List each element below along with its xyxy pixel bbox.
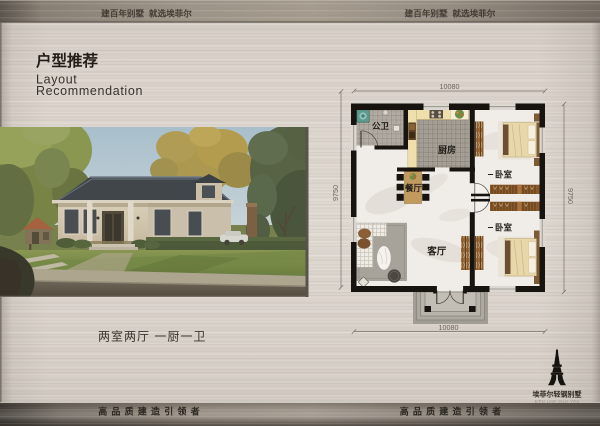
svg-text:10080: 10080 xyxy=(440,82,460,91)
svg-text:两室两厅 一厨一卫: 两室两厅 一厨一卫 xyxy=(98,329,206,344)
svg-text:9750: 9750 xyxy=(566,188,575,204)
svg-text:公卫: 公卫 xyxy=(372,121,390,131)
svg-text:建百年别墅 就选埃菲尔: 建百年别墅 就选埃菲尔 xyxy=(404,7,496,18)
svg-text:厨房: 厨房 xyxy=(438,144,456,155)
svg-text:卧室: 卧室 xyxy=(495,223,513,233)
svg-text:Recommendation: Recommendation xyxy=(36,84,143,98)
svg-text:9750: 9750 xyxy=(331,185,340,201)
svg-text:埃菲尔轻钢别墅: 埃菲尔轻钢别墅 xyxy=(533,390,582,399)
svg-text:户型推荐: 户型推荐 xyxy=(36,51,99,70)
svg-text:高品质建造引领者: 高品质建造引领者 xyxy=(400,406,506,417)
svg-text:卧室: 卧室 xyxy=(495,170,513,180)
svg-text:10080: 10080 xyxy=(439,323,459,332)
svg-text:餐厅: 餐厅 xyxy=(404,183,423,193)
svg-text:客厅: 客厅 xyxy=(426,246,447,258)
svg-text:Eiffel Light Steel Villa: Eiffel Light Steel Villa xyxy=(535,399,579,403)
svg-text:高品质建造引领者: 高品质建造引领者 xyxy=(98,406,204,417)
svg-text:建百年别墅 就选埃菲尔: 建百年别墅 就选埃菲尔 xyxy=(100,7,192,18)
